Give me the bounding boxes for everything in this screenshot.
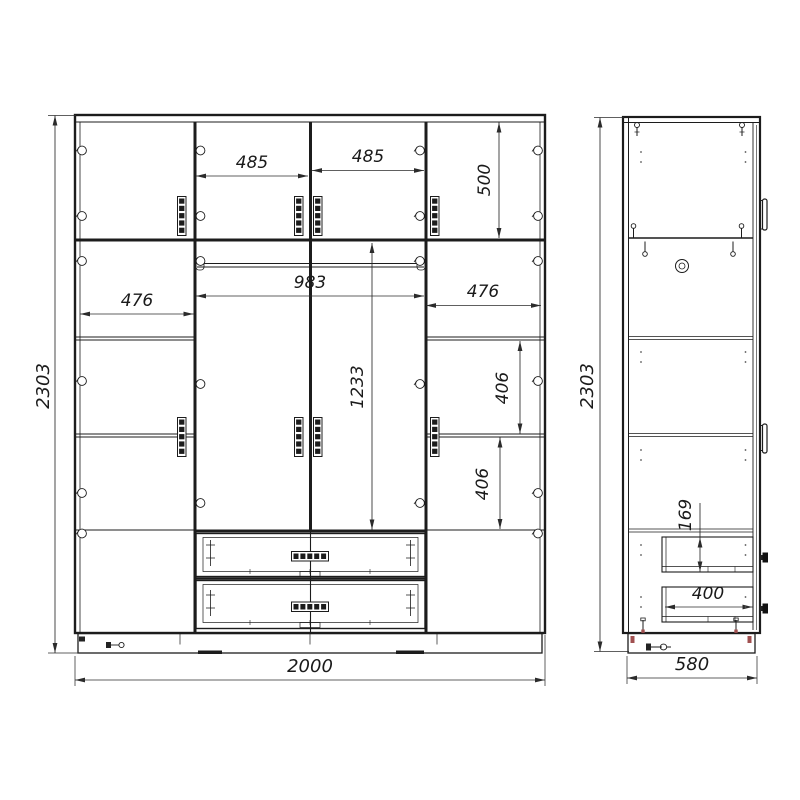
handle-segment bbox=[296, 420, 301, 425]
handle-segment bbox=[432, 434, 437, 439]
screw-tip-mark-left bbox=[641, 630, 644, 633]
handle-segment bbox=[179, 213, 184, 218]
handle-segment bbox=[296, 206, 301, 211]
hinge-icon bbox=[532, 212, 542, 221]
drill-hole-dot bbox=[640, 449, 642, 451]
dimension-arrowhead bbox=[414, 168, 424, 173]
hinge-icon bbox=[532, 377, 542, 386]
side-plinth bbox=[628, 630, 755, 654]
handle-segment bbox=[315, 449, 320, 454]
door-handle-icon bbox=[295, 418, 304, 457]
handle-segment bbox=[296, 449, 301, 454]
door-handle-icon bbox=[314, 197, 323, 236]
plinth-corner-fitting bbox=[79, 637, 85, 642]
adjustable-foot-icon-side bbox=[646, 644, 671, 651]
hinge-icon bbox=[414, 499, 424, 508]
dim-label-top-door-width-left: 485 bbox=[236, 153, 268, 173]
front-plinth bbox=[78, 634, 542, 655]
handle-segment bbox=[315, 206, 320, 211]
handle-segment bbox=[296, 427, 301, 432]
handle-segment bbox=[294, 604, 299, 610]
side-view bbox=[623, 117, 768, 653]
hinge-icon bbox=[532, 257, 542, 266]
drawer-handle-icon bbox=[292, 552, 329, 562]
dimension-arrowhead bbox=[75, 678, 85, 683]
handle-segment bbox=[296, 213, 301, 218]
dimension-arrowhead bbox=[743, 605, 753, 610]
handle-segment bbox=[179, 427, 184, 432]
dimension-arrowhead bbox=[518, 341, 523, 351]
dimension-arrowhead bbox=[298, 174, 308, 179]
dimension-arrowhead bbox=[497, 123, 502, 133]
dim-label-left-column-width: 476 bbox=[121, 291, 154, 311]
dimension-arrowhead bbox=[196, 174, 206, 179]
hinge-icon bbox=[76, 257, 86, 266]
hinge-icon bbox=[414, 380, 424, 389]
hinge-icon bbox=[532, 146, 542, 155]
handle-segment bbox=[432, 206, 437, 211]
drill-hole-dot bbox=[745, 554, 747, 556]
dim-line-side-overall-depth bbox=[627, 676, 757, 681]
screw-icons bbox=[631, 123, 744, 633]
handle-segment bbox=[321, 604, 326, 610]
dim-label-side-overall-height: 2303 bbox=[577, 363, 598, 409]
drill-hole-dot bbox=[745, 544, 747, 546]
handle-segment bbox=[315, 213, 320, 218]
dimension-arrowhead bbox=[184, 312, 194, 317]
dimension-lines bbox=[53, 116, 757, 683]
door-handle-icon bbox=[431, 418, 440, 457]
dim-line-top-door-left bbox=[196, 174, 308, 179]
handle-segment bbox=[315, 434, 320, 439]
drill-hole-dot bbox=[640, 544, 642, 546]
dim-label-side-overall-depth: 580 bbox=[675, 654, 709, 675]
handle-segment bbox=[296, 228, 301, 233]
dim-label-drawer-depth: 400 bbox=[692, 584, 724, 604]
dimension-arrowhead bbox=[498, 438, 503, 448]
dimension-arrowhead bbox=[747, 676, 757, 681]
handle-segment bbox=[179, 228, 184, 233]
dimension-arrowhead bbox=[698, 538, 703, 548]
dim-label-right-shelf-gap-upper: 406 bbox=[493, 372, 513, 405]
drill-hole-dot bbox=[745, 449, 747, 451]
handle-segment bbox=[432, 449, 437, 454]
handle-segment bbox=[296, 434, 301, 439]
handle-segment bbox=[432, 427, 437, 432]
handle-segment bbox=[432, 420, 437, 425]
dimension-arrowhead bbox=[80, 312, 90, 317]
handle-segment bbox=[296, 441, 301, 446]
drill-hole-dot bbox=[640, 351, 642, 353]
dim-label-front-overall-width: 2000 bbox=[287, 656, 333, 677]
dim-line-side-overall-height bbox=[598, 118, 603, 652]
drill-hole-dot bbox=[640, 151, 642, 153]
drill-hole-dot bbox=[640, 459, 642, 461]
handle-segment bbox=[315, 427, 320, 432]
handle-segment bbox=[179, 434, 184, 439]
handle-segment bbox=[321, 554, 326, 560]
dim-line-top-door-right bbox=[312, 168, 424, 173]
hinge-icon bbox=[414, 212, 424, 221]
foot-mark-left bbox=[198, 651, 222, 655]
dim-line-shelf-gap-lower bbox=[498, 438, 503, 530]
handle-segment bbox=[432, 213, 437, 218]
dimension-arrowhead bbox=[518, 424, 523, 434]
hinge-icon bbox=[76, 212, 86, 221]
handle-segment bbox=[307, 554, 312, 560]
drill-hole-dot bbox=[640, 161, 642, 163]
handle-segment bbox=[294, 554, 299, 560]
plinth-fitting-left bbox=[631, 636, 635, 643]
dimension-arrowhead bbox=[370, 243, 375, 253]
hinge-icon bbox=[76, 377, 86, 386]
handle-segment bbox=[179, 449, 184, 454]
drill-hole-dot bbox=[745, 459, 747, 461]
door-handle-icon bbox=[178, 197, 187, 236]
handle-segment bbox=[314, 604, 319, 610]
door-handle-icon bbox=[295, 197, 304, 236]
handle-segment bbox=[315, 220, 320, 225]
handle-segment bbox=[300, 554, 305, 560]
dimension-arrowhead bbox=[497, 228, 502, 238]
dim-label-center-door-height: 1233 bbox=[348, 365, 368, 408]
dimension-arrowhead bbox=[370, 520, 375, 530]
dim-label-right-column-width: 476 bbox=[467, 282, 500, 302]
drill-hole-dot bbox=[640, 596, 642, 598]
handle-segment bbox=[315, 228, 320, 233]
dim-line-front-overall-width bbox=[75, 678, 545, 683]
handle-segment bbox=[432, 199, 437, 204]
side-carcass-outline bbox=[623, 117, 760, 633]
drill-hole-dot bbox=[640, 361, 642, 363]
side-shelf-3 bbox=[629, 434, 754, 437]
dimension-arrowhead bbox=[598, 118, 603, 128]
dimension-arrowhead bbox=[627, 676, 637, 681]
handle-segment bbox=[315, 441, 320, 446]
dimension-arrowhead bbox=[196, 294, 206, 299]
dimension-arrowhead bbox=[531, 303, 541, 308]
drill-hole-dot bbox=[745, 361, 747, 363]
dimension-arrowhead bbox=[498, 519, 503, 529]
dimension-arrowhead bbox=[53, 643, 58, 653]
handle-segment bbox=[314, 554, 319, 560]
door-handle-icon bbox=[314, 418, 323, 457]
handle-segment bbox=[179, 206, 184, 211]
dimension-labels: 2303 2000 485 485 500 476 983 476 1233 4… bbox=[33, 147, 724, 677]
drill-hole-dot bbox=[745, 151, 747, 153]
handle-segment bbox=[315, 420, 320, 425]
hinge-icon bbox=[414, 146, 424, 155]
dimension-arrowhead bbox=[598, 642, 603, 652]
foot-mark-right bbox=[396, 651, 424, 655]
dim-label-front-overall-height: 2303 bbox=[33, 363, 54, 409]
drill-hole-dot bbox=[640, 606, 642, 608]
dim-label-drawer-front-height: 169 bbox=[676, 499, 696, 531]
dim-line-center-door-height bbox=[370, 243, 375, 530]
handle-segment bbox=[296, 220, 301, 225]
dimension-arrowhead bbox=[414, 294, 424, 299]
door-handle-icon bbox=[178, 418, 187, 457]
dim-label-top-section-height: 500 bbox=[475, 164, 495, 196]
handle-segment bbox=[179, 420, 184, 425]
hinge-icon bbox=[532, 489, 542, 498]
dim-label-right-shelf-gap-lower: 406 bbox=[473, 468, 493, 501]
dim-line-right-column-width bbox=[426, 303, 541, 308]
handle-segment bbox=[296, 199, 301, 204]
dimension-arrowhead bbox=[665, 605, 675, 610]
dim-line-drawer-depth bbox=[665, 605, 753, 610]
drawer-1-profile bbox=[662, 537, 753, 572]
dim-line-top-section-height bbox=[497, 123, 502, 239]
handle-segment bbox=[179, 220, 184, 225]
handle-segment bbox=[432, 228, 437, 233]
adjustable-foot-icon bbox=[106, 642, 124, 648]
wardrobe-technical-drawing: 2303 2000 485 485 500 476 983 476 1233 4… bbox=[0, 0, 800, 800]
hinge-icon bbox=[76, 146, 86, 155]
dim-label-top-door-width-right: 485 bbox=[352, 147, 384, 167]
screw-tip-mark-right bbox=[734, 630, 737, 633]
dimension-arrowhead bbox=[535, 678, 545, 683]
dim-label-center-section-width: 983 bbox=[294, 273, 326, 293]
drill-hole-dot bbox=[745, 161, 747, 163]
hinge-icon bbox=[76, 489, 86, 498]
handle-segment bbox=[300, 604, 305, 610]
handle-segment bbox=[315, 199, 320, 204]
plinth-fitting-right bbox=[748, 636, 752, 643]
drill-hole-dot bbox=[745, 351, 747, 353]
handle-segment bbox=[179, 441, 184, 446]
drill-hole-dot bbox=[745, 596, 747, 598]
technical-drawing-page: 2303 2000 485 485 500 476 983 476 1233 4… bbox=[0, 0, 800, 800]
drill-hole-dot bbox=[640, 554, 642, 556]
hinge-icon bbox=[414, 257, 424, 266]
dimension-arrowhead bbox=[312, 168, 322, 173]
dimension-extension-lines bbox=[48, 116, 757, 687]
dim-line-left-column-width bbox=[80, 312, 194, 317]
drawer-handle-icon bbox=[292, 602, 329, 612]
handle-segment bbox=[307, 604, 312, 610]
side-shelf-2 bbox=[629, 337, 754, 340]
dim-line-shelf-gap-upper bbox=[518, 341, 523, 434]
handle-segment bbox=[432, 441, 437, 446]
handle-segment bbox=[179, 199, 184, 204]
hardware-glyphs bbox=[76, 146, 746, 611]
cam-lock-icon bbox=[676, 260, 689, 273]
drill-hole-dot bbox=[745, 606, 747, 608]
dimension-arrowhead bbox=[53, 116, 58, 126]
door-handle-icon bbox=[431, 197, 440, 236]
handle-segment bbox=[432, 220, 437, 225]
